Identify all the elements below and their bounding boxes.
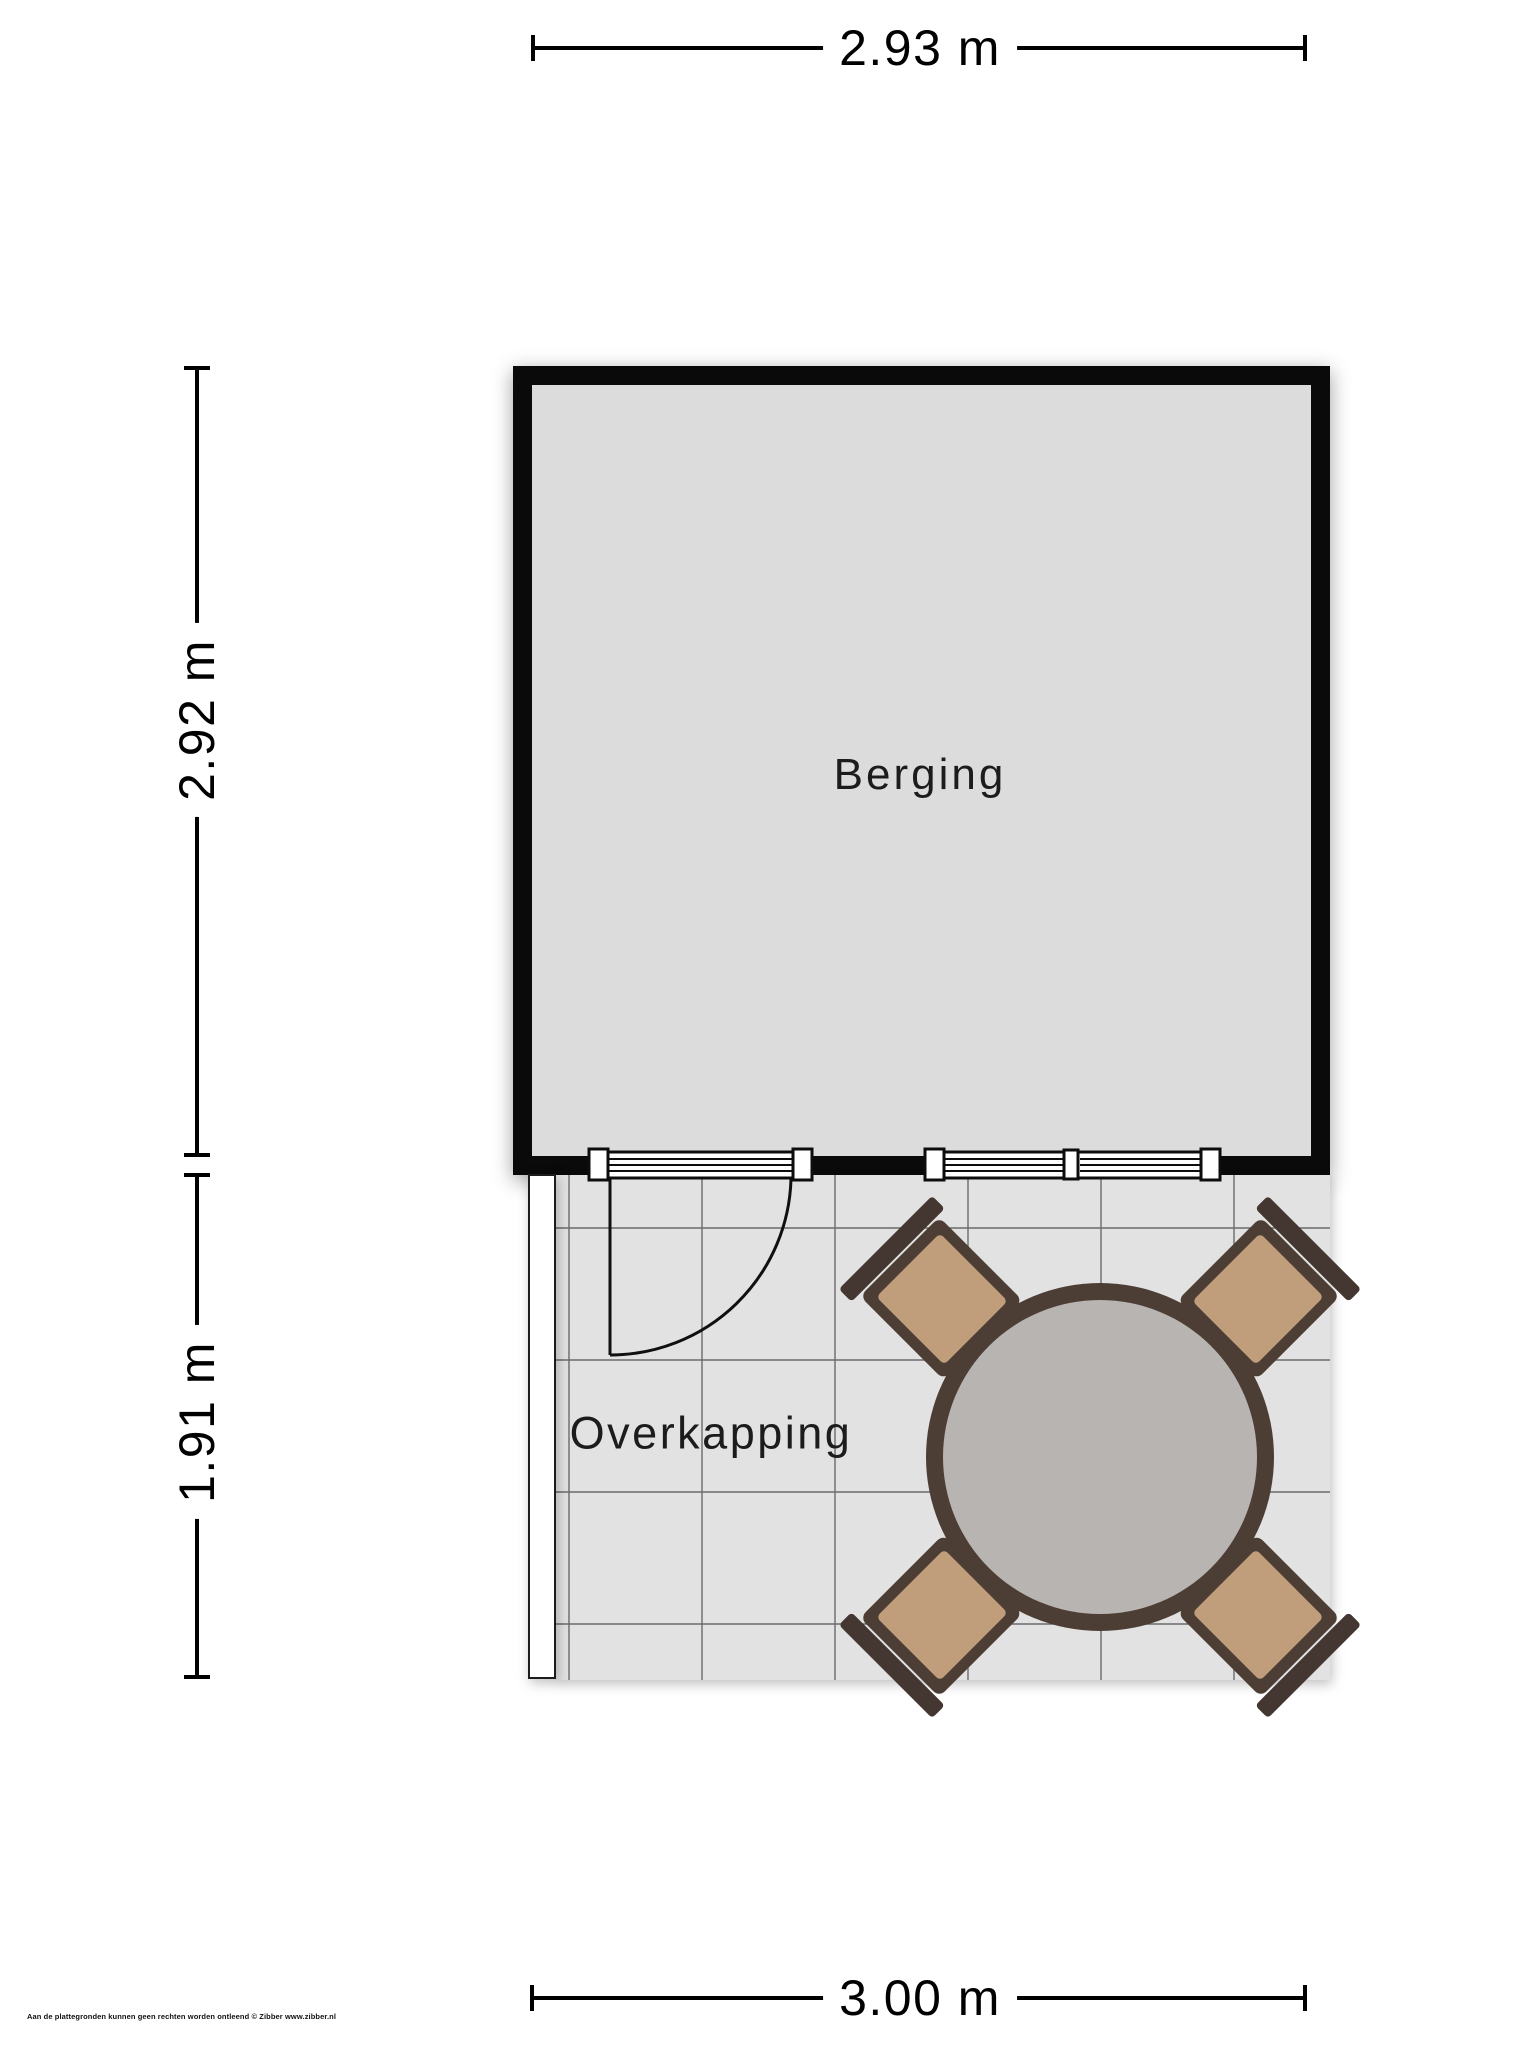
dimension-tick bbox=[530, 1985, 534, 2011]
dimension-tick bbox=[1303, 1985, 1307, 2011]
open-side-marker bbox=[529, 1175, 555, 1678]
dimension-tick bbox=[1303, 35, 1307, 61]
dining-table-icon bbox=[926, 1283, 1274, 1631]
floorplan-canvas bbox=[0, 0, 1536, 2048]
dimension-label-bottom: 3.00 m bbox=[823, 1967, 1017, 2029]
dimension-tick bbox=[184, 366, 210, 370]
glazed-door-icon bbox=[589, 1149, 812, 1180]
disclaimer-text: Aan de plattegronden kunnen geen rechten… bbox=[27, 2012, 336, 2021]
floorplan-page: 2.93 m 2.92 m 1.91 m 3.00 m Berging Over… bbox=[0, 0, 1536, 2048]
room-label-overkapping: Overkapping bbox=[570, 1411, 853, 1456]
dimension-tick bbox=[184, 1173, 210, 1177]
dimension-tick bbox=[531, 35, 535, 61]
dimension-label-left-upper: 2.92 m bbox=[166, 623, 228, 817]
dimension-label-top: 2.93 m bbox=[823, 17, 1017, 79]
dimension-tick bbox=[184, 1153, 210, 1157]
dimension-tick bbox=[184, 1675, 210, 1679]
double-window-icon bbox=[925, 1149, 1220, 1180]
dimension-label-left-lower: 1.91 m bbox=[166, 1325, 228, 1519]
room-label-berging: Berging bbox=[834, 753, 1007, 797]
